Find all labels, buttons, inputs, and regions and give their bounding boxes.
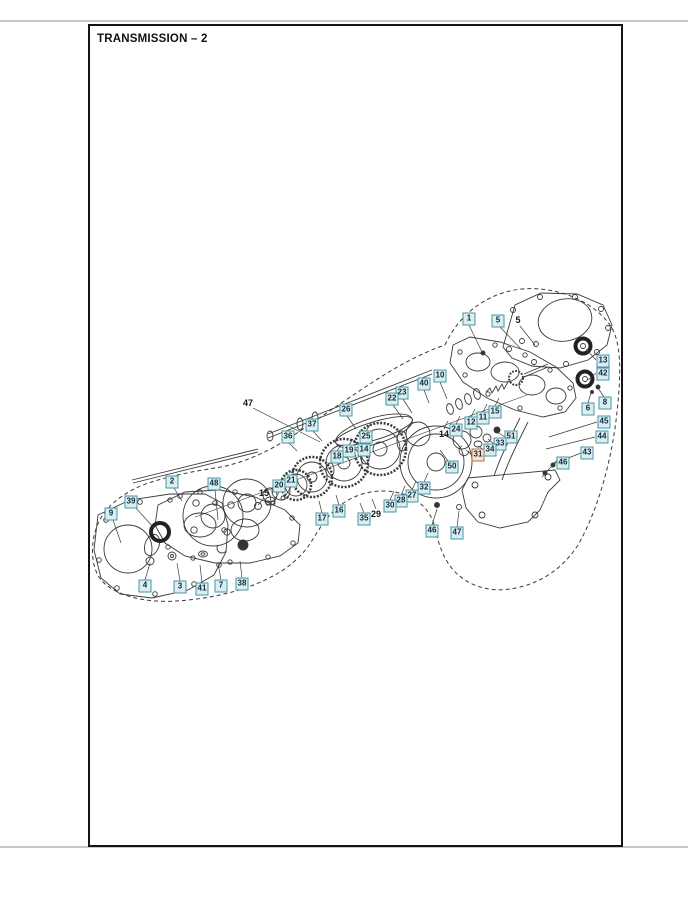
- callout-4[interactable]: 4: [139, 580, 152, 593]
- callout-15[interactable]: 15: [489, 406, 502, 419]
- callout-41[interactable]: 41: [196, 583, 209, 596]
- callout-47[interactable]: 47: [451, 527, 464, 540]
- callout-3[interactable]: 3: [174, 581, 187, 594]
- callout-42[interactable]: 42: [597, 368, 610, 381]
- callout-45[interactable]: 45: [598, 416, 611, 429]
- callout-38[interactable]: 38: [236, 578, 249, 591]
- callout-11[interactable]: 11: [477, 412, 490, 425]
- callout-2[interactable]: 2: [166, 476, 179, 489]
- callout-7[interactable]: 7: [215, 580, 228, 593]
- callout-25[interactable]: 25: [360, 431, 373, 444]
- callout-32[interactable]: 32: [418, 482, 431, 495]
- callout-17[interactable]: 17: [316, 513, 329, 526]
- callout-layer: 1513421040232226373686454443461511122451…: [0, 0, 688, 900]
- part-label-14: 14: [439, 429, 449, 439]
- callout-34[interactable]: 34: [484, 444, 497, 457]
- callout-18[interactable]: 18: [331, 451, 344, 464]
- catalog-page: TRANSMISSION – 2: [0, 0, 688, 900]
- callout-40[interactable]: 40: [418, 378, 431, 391]
- part-label-15: 15: [259, 488, 269, 498]
- callout-48[interactable]: 48: [208, 478, 221, 491]
- callout-10[interactable]: 10: [434, 370, 447, 383]
- callout-39[interactable]: 39: [125, 496, 138, 509]
- callout-16[interactable]: 16: [333, 505, 346, 518]
- part-label-5: 5: [515, 315, 520, 325]
- callout-46[interactable]: 46: [557, 457, 570, 470]
- callout-12[interactable]: 12: [465, 417, 478, 430]
- callout-43[interactable]: 43: [581, 447, 594, 460]
- callout-36[interactable]: 36: [282, 431, 295, 444]
- callout-13[interactable]: 13: [597, 355, 610, 368]
- callout-21[interactable]: 21: [285, 475, 298, 488]
- part-label-29: 29: [371, 509, 381, 519]
- callout-1[interactable]: 1: [463, 313, 476, 326]
- callout-35[interactable]: 35: [358, 513, 371, 526]
- callout-8[interactable]: 8: [599, 397, 612, 410]
- callout-50[interactable]: 50: [446, 461, 459, 474]
- callout-37[interactable]: 37: [306, 419, 319, 432]
- callout-46[interactable]: 46: [426, 525, 439, 538]
- callout-30[interactable]: 30: [384, 500, 397, 513]
- callout-44[interactable]: 44: [596, 431, 609, 444]
- callout-24[interactable]: 24: [450, 424, 463, 437]
- callout-9[interactable]: 9: [105, 508, 118, 521]
- callout-26[interactable]: 26: [340, 404, 353, 417]
- callout-6[interactable]: 6: [582, 403, 595, 416]
- callout-22[interactable]: 22: [386, 393, 399, 406]
- callout-31[interactable]: 31: [472, 449, 485, 462]
- part-label-47: 47: [243, 398, 253, 408]
- callout-20[interactable]: 20: [273, 480, 286, 493]
- callout-19[interactable]: 19: [343, 445, 356, 458]
- callout-5[interactable]: 5: [492, 315, 505, 328]
- callout-14[interactable]: 14: [358, 444, 371, 457]
